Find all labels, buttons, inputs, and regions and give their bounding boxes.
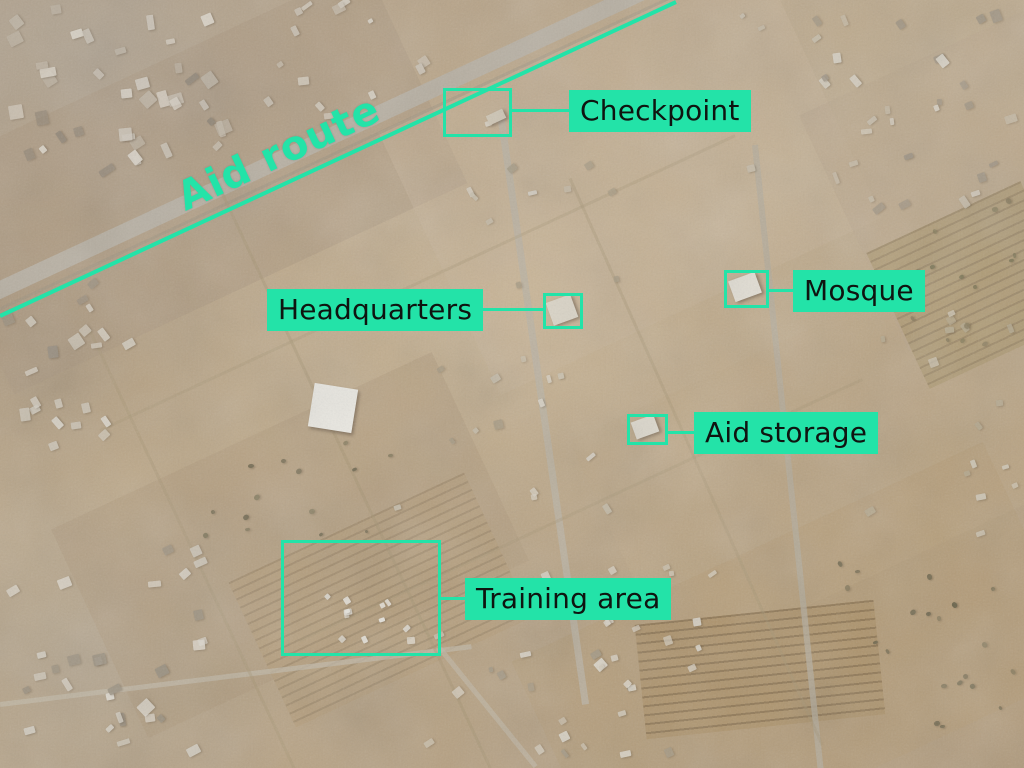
mosque-connector-line [769,289,793,292]
annotation-overlay: Aid route Checkpoint Headquarters Mosque… [0,0,1024,768]
headquarters-label: Headquarters [267,289,483,331]
aid-storage-label: Aid storage [694,412,878,454]
training-area-connector-line [441,597,465,600]
checkpoint-target-box [443,88,512,137]
training-area-target-box [281,540,441,656]
annotated-satellite-map: Aid route Checkpoint Headquarters Mosque… [0,0,1024,768]
headquarters-target-box [543,293,583,329]
mosque-target-box [724,270,769,308]
mosque-label: Mosque [793,270,925,312]
aid-storage-target-box [627,414,668,445]
aid-route-line [0,0,1024,768]
headquarters-connector-line [478,308,543,311]
aid-storage-connector-line [668,431,694,434]
training-area-label: Training area [465,578,671,620]
checkpoint-label: Checkpoint [569,90,751,132]
checkpoint-connector-line [512,109,569,112]
